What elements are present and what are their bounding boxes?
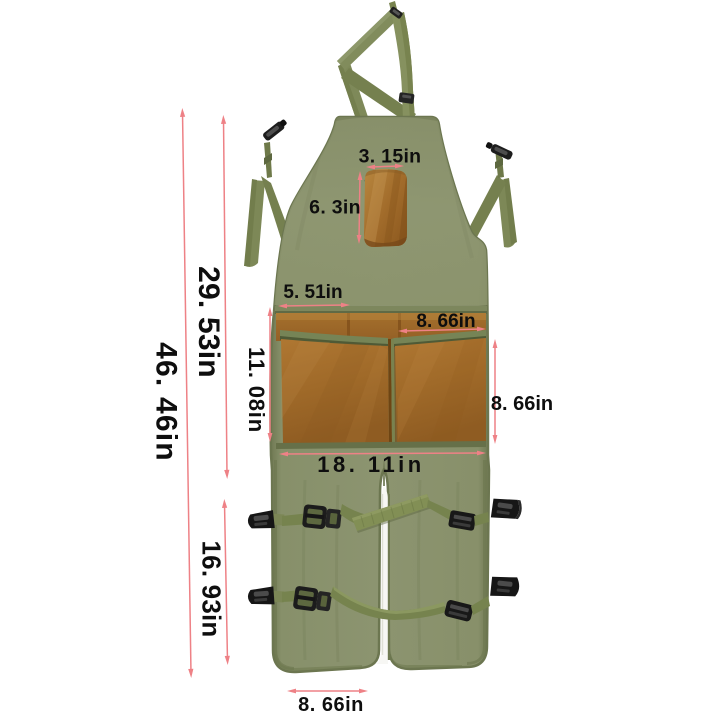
svg-text:46. 46in: 46. 46in — [150, 342, 183, 462]
svg-text:29. 53in: 29. 53in — [192, 266, 225, 378]
svg-text:3. 15in: 3. 15in — [359, 146, 422, 168]
svg-text:11. 08in: 11. 08in — [244, 347, 269, 433]
svg-text:8. 66in: 8. 66in — [416, 311, 475, 332]
svg-text:6. 3in: 6. 3in — [309, 197, 361, 219]
svg-text:5. 51in: 5. 51in — [283, 282, 342, 303]
svg-text:8. 66in: 8. 66in — [298, 694, 364, 716]
svg-text:8. 66in: 8. 66in — [491, 393, 553, 415]
svg-text:16. 93in: 16. 93in — [197, 541, 227, 638]
svg-text:18. 11in: 18. 11in — [317, 452, 425, 477]
